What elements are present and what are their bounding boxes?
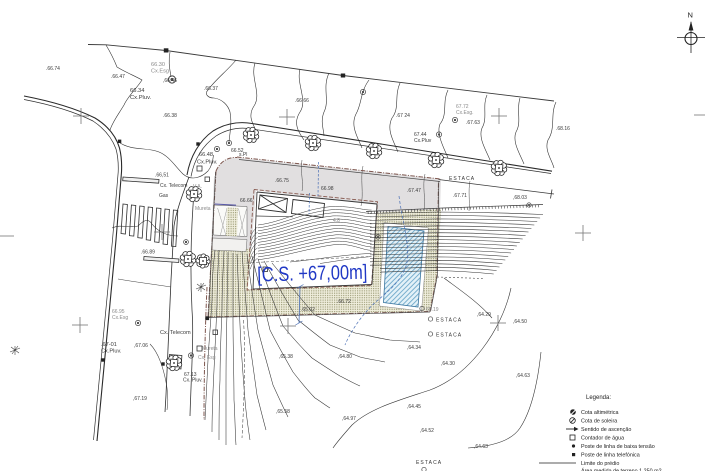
svg-text:Área medida de terreno 1.250 m: Área medida de terreno 1.250 m2: [581, 468, 662, 471]
svg-text:ESTACA: ESTACA: [436, 318, 462, 324]
svg-text:,68.03: ,68.03: [513, 195, 527, 201]
svg-text:,64.29: ,64.29: [477, 312, 491, 318]
svg-text:,64.97: ,64.97: [342, 416, 356, 422]
svg-text:.66.72: .66.72: [337, 299, 351, 305]
svg-text:Cx. Telecom: Cx. Telecom: [160, 330, 191, 336]
svg-text:,64.34: ,64.34: [407, 345, 421, 351]
svg-text:.66.89: .66.89: [141, 250, 155, 256]
svg-text:,67.19: ,67.19: [133, 396, 147, 402]
svg-text:66.30: 66.30: [151, 62, 165, 68]
svg-text:,65.38: ,65.38: [279, 354, 293, 360]
svg-text:.66.47: .66.47: [111, 74, 125, 80]
svg-text:ESTACA: ESTACA: [449, 176, 475, 182]
svg-text:Cx.Esg.: Cx.Esg.: [456, 110, 474, 116]
svg-text:,64.63: ,64.63: [516, 373, 530, 379]
svg-text:66.66: 66.66: [240, 198, 253, 204]
svg-text:[C.S. +67,00m]: [C.S. +67,00m]: [257, 261, 368, 287]
svg-text:Cx. Telecom: Cx. Telecom: [160, 183, 187, 189]
svg-text:V.A.: V.A.: [193, 184, 202, 190]
svg-text:.66.38: .66.38: [163, 113, 177, 119]
svg-text:Mureta: Mureta: [195, 206, 211, 212]
svg-text:,67.06: ,67.06: [134, 343, 148, 349]
svg-text:Sentido de ascenção: Sentido de ascenção: [581, 427, 631, 433]
svg-text:,64.52: ,64.52: [420, 428, 434, 434]
svg-text:.65.02: .65.02: [301, 307, 315, 313]
svg-text:Cx. Pluv.: Cx. Pluv.: [183, 378, 203, 384]
svg-text:ESTACA: ESTACA: [436, 333, 462, 339]
svg-text:.66.37: .66.37: [204, 86, 218, 92]
svg-text:Mureta: Mureta: [202, 346, 218, 352]
svg-text:66.48: 66.48: [199, 152, 213, 158]
svg-text:.68.16: .68.16: [556, 126, 570, 132]
svg-text:66.98: 66.98: [321, 186, 334, 192]
svg-text:,65.58: ,65.58: [276, 409, 290, 415]
svg-text:.66.74: .66.74: [46, 66, 60, 72]
svg-text:Cx.Pluv: Cx.Pluv: [414, 138, 432, 144]
svg-text:Cota de soleira: Cota de soleira: [581, 419, 617, 425]
svg-text:,66.46: ,66.46: [163, 78, 177, 84]
svg-text:,64.45: ,64.45: [407, 404, 421, 410]
svg-text:Contador de água: Contador de água: [581, 436, 624, 442]
svg-text:.67 24: .67 24: [396, 113, 410, 119]
svg-text:ESTACA: ESTACA: [416, 460, 442, 466]
svg-text:Poste de linha de baixa tensão: Poste de linha de baixa tensão: [581, 444, 655, 450]
svg-text:Cx. Esg: Cx. Esg: [198, 355, 216, 361]
svg-text:.66.66: .66.66: [295, 98, 309, 104]
svg-text:Cx.Pluv.: Cx.Pluv.: [130, 95, 152, 101]
svg-text:66.34: 66.34: [130, 88, 145, 94]
svg-text:Cx.Pluv.: Cx.Pluv.: [101, 349, 122, 355]
svg-text:Cota altimétrica: Cota altimétrica: [581, 410, 618, 416]
svg-text:Gas: Gas: [159, 193, 169, 199]
svg-text:.67.71: .67.71: [453, 193, 467, 199]
svg-text:65.19: 65.19: [426, 307, 439, 313]
svg-text:Poste de linha telefónica: Poste de linha telefónica: [581, 453, 640, 459]
svg-text:.66,51: .66,51: [155, 173, 169, 179]
svg-text:s.Pl: s.Pl: [239, 152, 247, 158]
svg-text:Cx.Esg: Cx.Esg: [112, 315, 128, 321]
svg-text:Legenda:: Legenda:: [586, 395, 611, 401]
svg-text:Limite do prédio: Limite do prédio: [581, 461, 619, 467]
svg-text:,64.30: ,64.30: [441, 361, 455, 367]
svg-text:,64.63: ,64.63: [474, 444, 488, 450]
svg-text:Cx.Esg: Cx.Esg: [151, 69, 169, 75]
svg-text:.66.75: .66.75: [275, 178, 289, 184]
svg-text:.67.47: .67.47: [407, 188, 421, 194]
svg-text:.67-01: .67-01: [101, 342, 117, 348]
svg-text:4.8: 4.8: [333, 218, 340, 224]
svg-text:,64.50: ,64.50: [513, 319, 527, 325]
svg-text:N: N: [688, 11, 693, 20]
svg-text:.67.63: .67.63: [466, 120, 480, 126]
svg-text:Cx.Pluv.: Cx.Pluv.: [197, 160, 218, 166]
svg-text:,64.80: ,64.80: [338, 354, 352, 360]
